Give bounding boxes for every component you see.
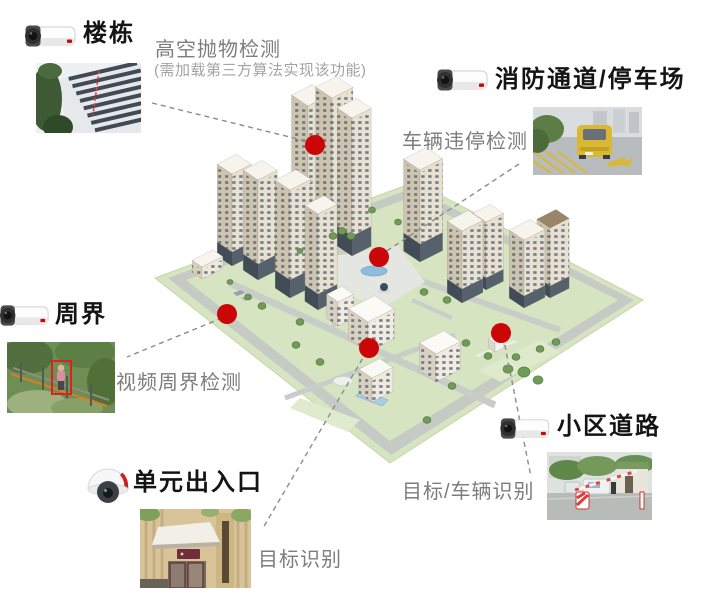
detection-label-fire-lane-parking: 车辆违停检测 (402, 130, 528, 154)
callout-title-community-road: 小区道路 (557, 413, 661, 441)
camera-hotspot-community-road (491, 323, 511, 343)
detection-label-perimeter: 视频周界检测 (116, 371, 242, 395)
road-barrier-gate-photo (547, 452, 652, 520)
unit-entrance-photo (140, 509, 251, 588)
callout-title-building: 楼栋 (83, 20, 135, 48)
connector-perimeter (127, 318, 222, 357)
bullet-camera-icon (0, 301, 50, 330)
camera-hotspot-perimeter (217, 304, 237, 324)
bullet-camera-icon (25, 21, 77, 51)
detection-label-building: 高空抛物检测 (155, 38, 281, 62)
callout-title-unit-entrance: 单元出入口 (133, 469, 263, 497)
detection-label-community-road: 目标/车辆识别 (402, 480, 535, 504)
detection-note-building: (需加载第三方算法实现该功能) (154, 62, 367, 80)
detection-label-unit-entrance: 目标识别 (258, 548, 342, 572)
callout-title-fire-lane-parking: 消防通道/停车场 (495, 66, 686, 94)
smart-community-security-diagram: 楼栋 高空抛物检测 (需加载第三方算法实现该功能) 消防通道/停车场 (0, 0, 710, 599)
illegal-parking-photo (533, 107, 642, 175)
camera-hotspot-fire-lane-parking (369, 247, 389, 267)
connector-building (152, 103, 306, 141)
building-low-angle-photo (36, 63, 141, 133)
fence-intrusion-photo (7, 342, 115, 413)
callout-title-perimeter: 周界 (55, 301, 107, 329)
camera-hotspot-building (305, 135, 325, 155)
dome-camera-icon (84, 461, 132, 509)
bullet-camera-icon (437, 65, 489, 95)
bullet-camera-icon (499, 414, 552, 443)
camera-hotspot-unit-entrance (359, 338, 379, 358)
